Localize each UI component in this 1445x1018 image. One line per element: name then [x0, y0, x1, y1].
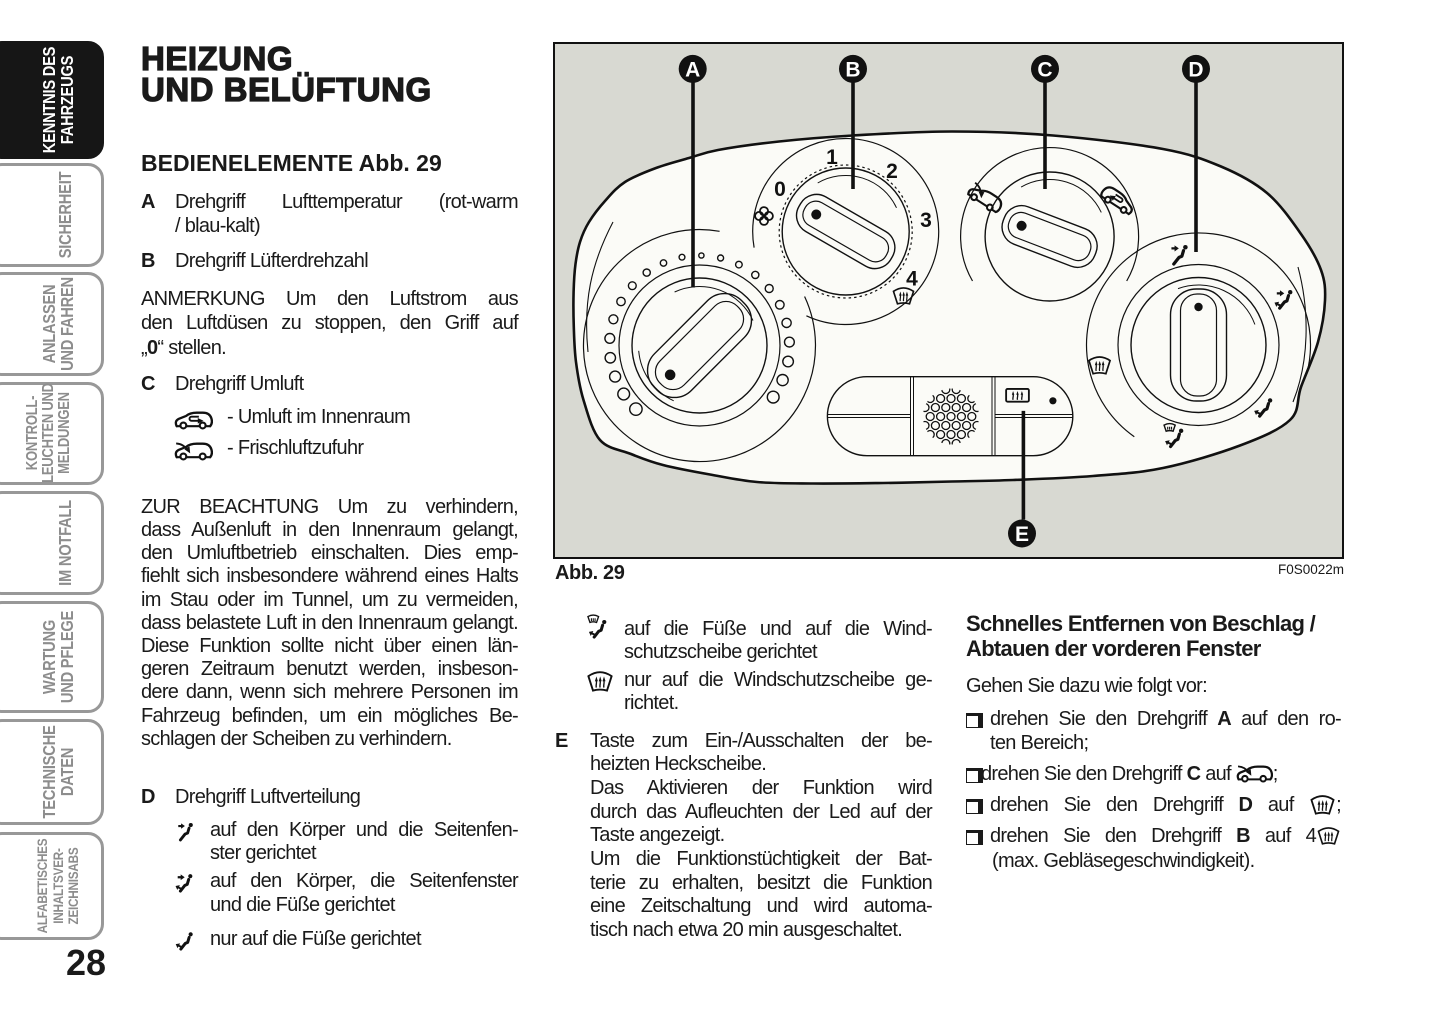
svg-text:C: C [1037, 58, 1052, 81]
svg-text:0: 0 [774, 178, 786, 201]
svg-text:1: 1 [826, 146, 838, 169]
svg-text:4: 4 [906, 267, 918, 290]
svg-text:3: 3 [920, 209, 932, 232]
svg-text:B: B [845, 58, 860, 81]
svg-text:2: 2 [886, 160, 898, 183]
svg-text:A: A [685, 58, 700, 81]
svg-text:E: E [1015, 523, 1029, 546]
svg-text:D: D [1188, 58, 1203, 81]
